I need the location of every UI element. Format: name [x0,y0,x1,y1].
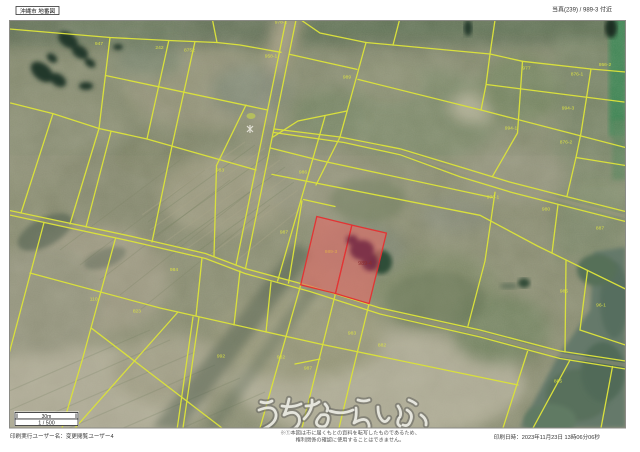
svg-text:印刷実行ユーザー名：変更閲覧ユーザー4: 印刷実行ユーザー名：変更閲覧ユーザー4 [10,432,114,440]
svg-text:983: 983 [348,331,356,337]
svg-text:982: 982 [277,355,285,361]
svg-text:989-3: 989-3 [325,249,338,255]
svg-text:992: 992 [217,354,225,360]
svg-text:823: 823 [133,309,141,315]
svg-text:887: 887 [596,226,604,232]
svg-text:30m: 30m [42,414,52,420]
svg-text:882: 882 [378,343,386,349]
svg-text:110: 110 [90,297,98,303]
svg-text:987: 987 [280,230,288,236]
svg-text:994-3: 994-3 [562,106,575,112]
svg-text:※①本図は市に届くもとの資料を転写したものであるため、: ※①本図は市に届くもとの資料を転写したものであるため、 [280,429,420,437]
svg-text:権利関係の確認に使用することはできません。: 権利関係の確認に使用することはできません。 [296,436,405,444]
svg-text:984: 984 [170,267,178,273]
svg-text:994-1: 994-1 [505,126,518,132]
svg-text:980: 980 [542,207,550,213]
svg-text:987: 987 [304,366,312,372]
svg-text:985: 985 [560,289,568,295]
svg-text:983: 983 [216,168,224,174]
svg-text:986: 986 [299,170,307,176]
svg-text:989: 989 [343,75,351,81]
svg-text:8752: 8752 [184,48,195,54]
svg-text:977: 977 [522,66,530,72]
svg-text:242: 242 [155,45,163,51]
svg-text:976-1: 976-1 [487,195,500,201]
svg-text:876-1: 876-1 [571,72,584,78]
svg-text:947: 947 [95,41,103,47]
svg-text:96-1: 96-1 [596,303,606,309]
svg-text:956-2: 956-2 [599,62,612,68]
svg-text:876-2: 876-2 [560,140,573,146]
svg-text:989-4: 989-4 [358,261,372,267]
svg-text:沖縄市 地番図: 沖縄市 地番図 [20,7,56,15]
svg-text:958-1: 958-1 [265,54,278,60]
svg-text:当真(239) / 989-3 付近: 当真(239) / 989-3 付近 [552,6,612,14]
svg-text:印刷日時：2023年11月23日 13時06分06秒: 印刷日時：2023年11月23日 13時06分06秒 [494,433,601,441]
svg-text:1 / 500: 1 / 500 [38,421,55,427]
svg-text:885: 885 [554,379,562,385]
